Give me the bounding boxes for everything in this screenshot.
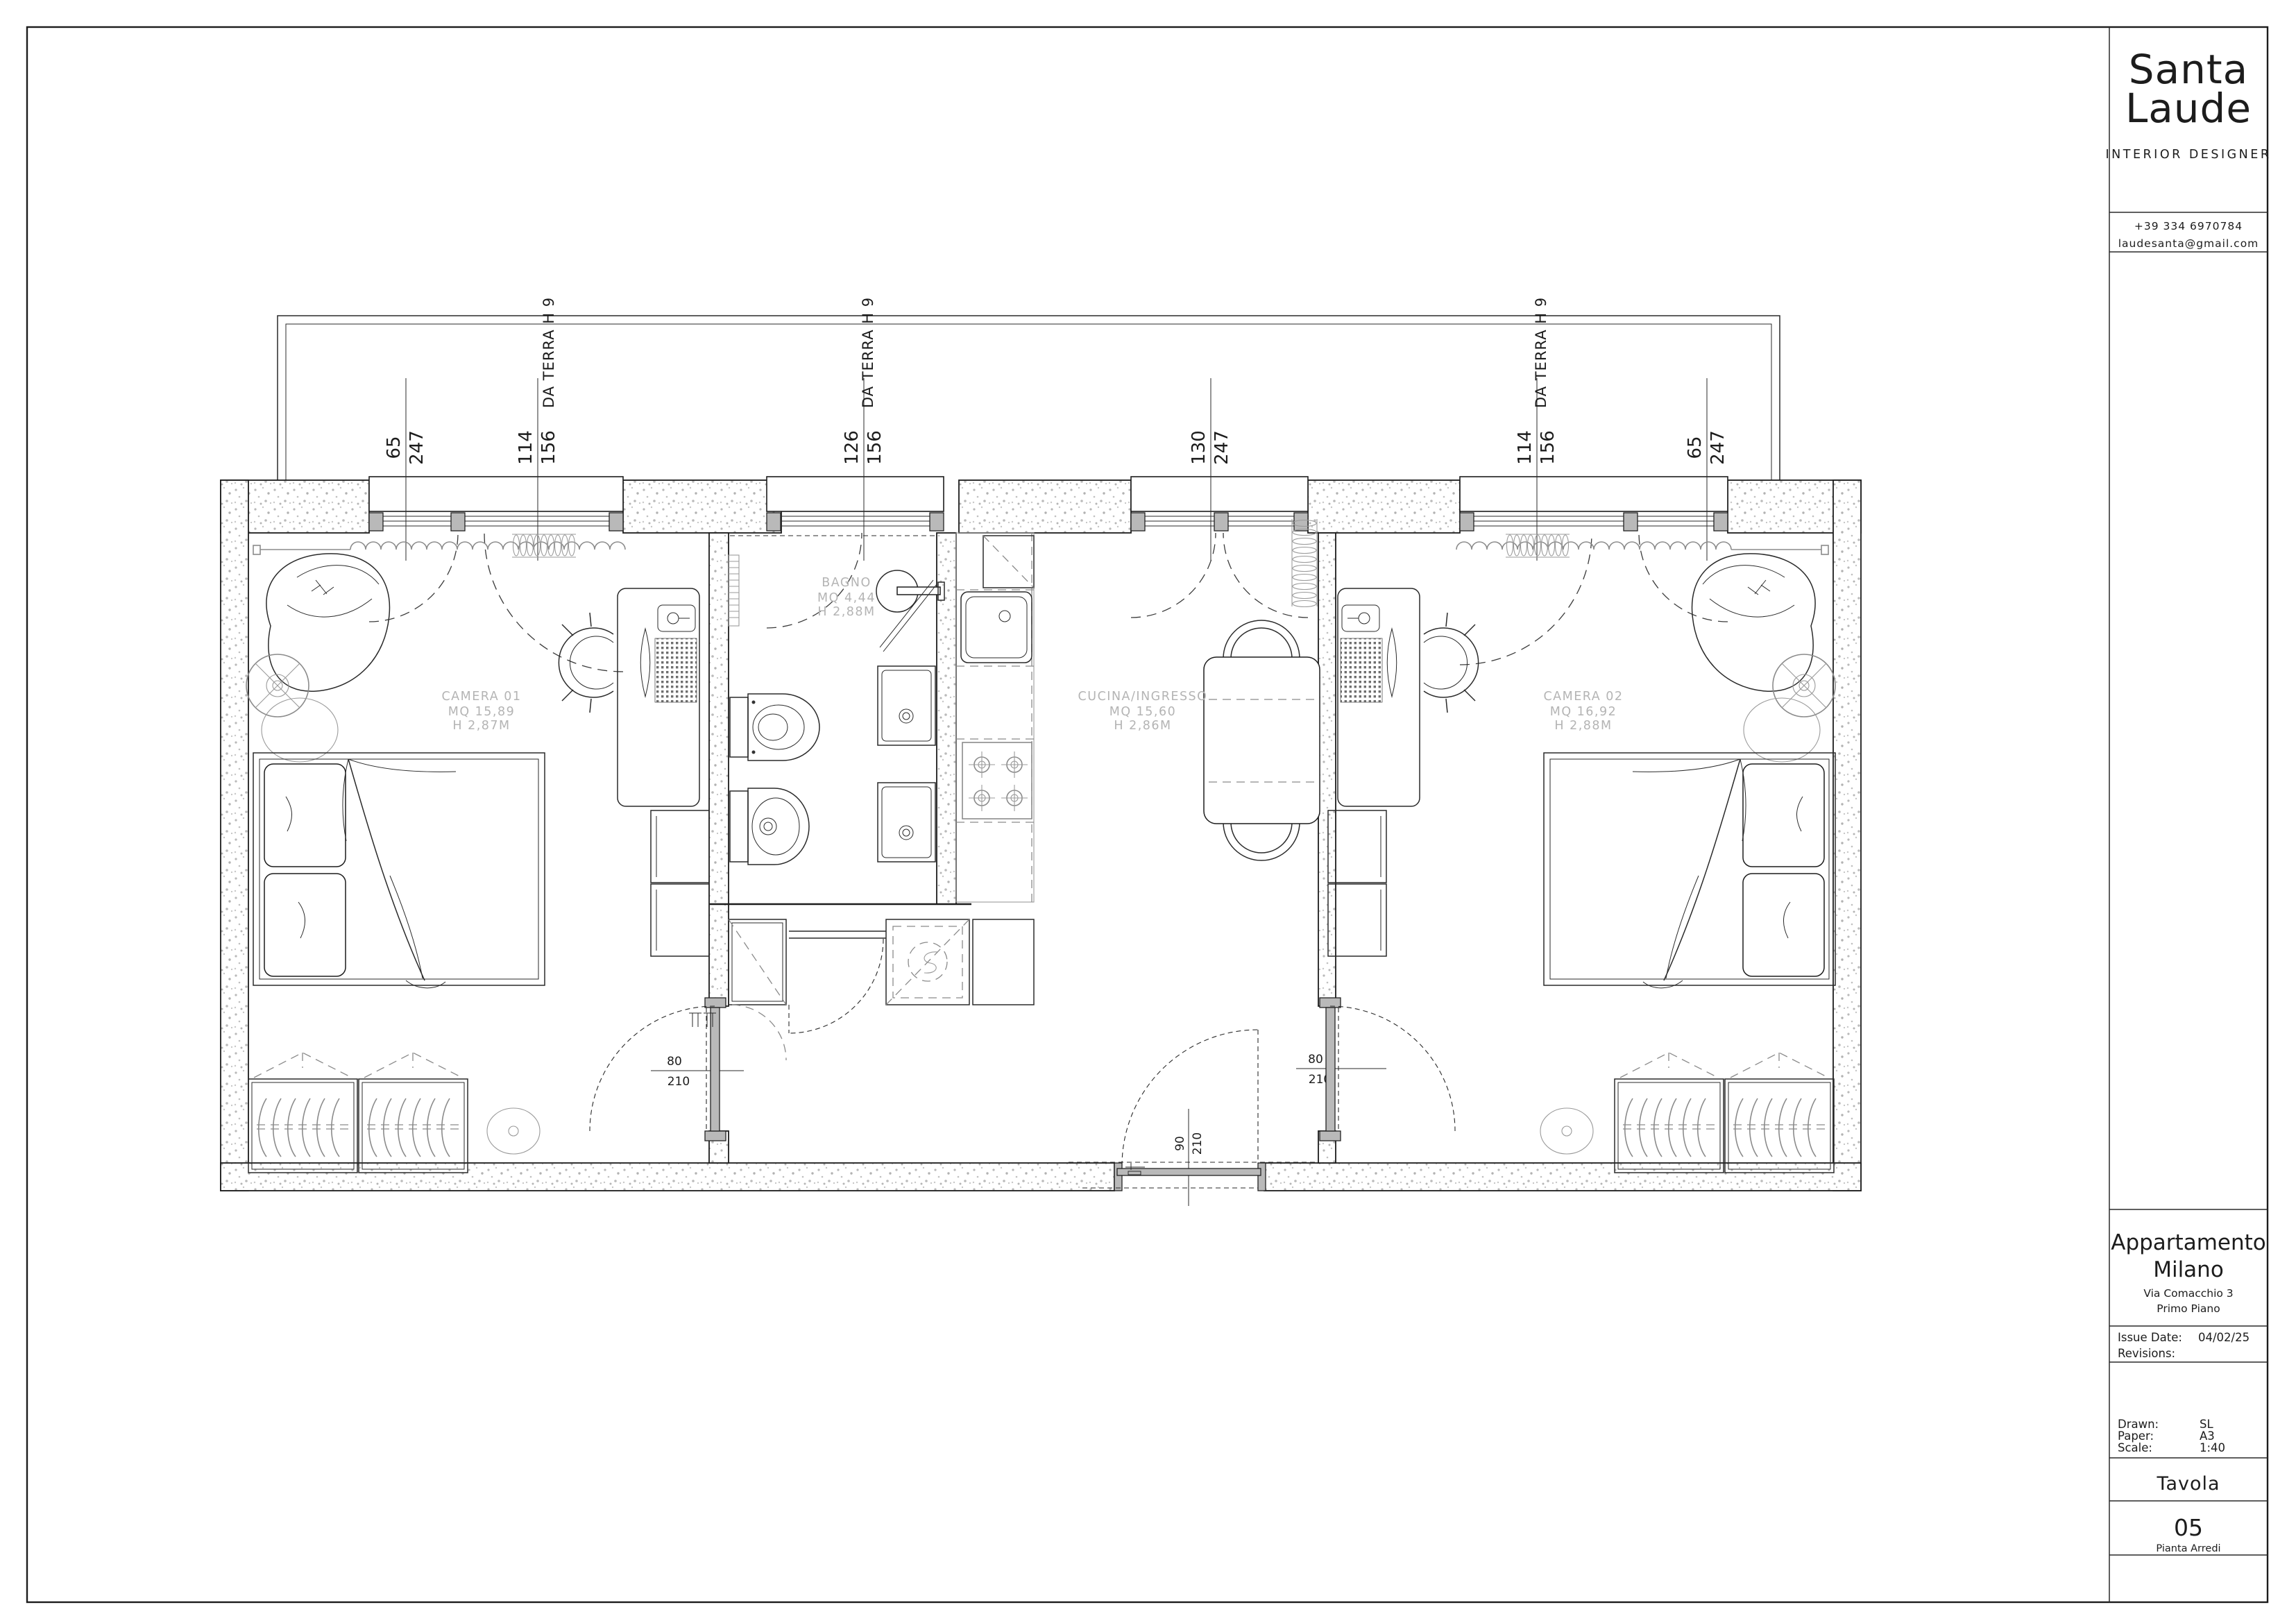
floor-lamp <box>487 1108 540 1154</box>
desk-with-chair <box>559 588 709 956</box>
room-cucina-ingresso: CUCINA/INGRESSO MQ 15,60 H 2,86M <box>956 519 1320 902</box>
sheet-name: Pianta Arredi <box>2156 1543 2220 1554</box>
window-floor-note: DA TERRA H 9 <box>860 297 876 408</box>
sheet-label: Tavola <box>2156 1473 2220 1495</box>
room-label-height: H 2,86M <box>1114 719 1171 733</box>
dim-width: 126 <box>842 430 862 465</box>
fridge <box>983 536 1034 588</box>
door-dim-height: 210 <box>1191 1132 1205 1155</box>
room-label-area: MQ 15,89 <box>448 705 516 719</box>
brand-name-line2: Laude <box>2125 85 2252 132</box>
radiator <box>729 555 739 626</box>
room-label-name: BAGNO <box>822 576 871 590</box>
window-cucina <box>1131 477 1308 531</box>
room-camera-02: CAMERA 02 MQ 16,92 H 2,88M <box>1328 534 1835 1173</box>
project-title-line1: Appartamento <box>2111 1230 2266 1255</box>
door-dim-height: 210 <box>667 1075 690 1089</box>
beanbag-armchair <box>246 554 389 762</box>
dining-chair <box>1223 822 1300 860</box>
beanbag-armchair <box>1692 554 1835 762</box>
project-floor: Primo Piano <box>2157 1302 2220 1315</box>
door-camera02 <box>1320 998 1455 1141</box>
wardrobe <box>1615 1053 1724 1173</box>
brand-phone: +39 334 6970784 <box>2134 220 2243 232</box>
washing-machine <box>886 919 969 1005</box>
window-camera02 <box>1460 477 1728 531</box>
window-bagno <box>767 477 944 531</box>
dim-height: 156 <box>1538 430 1558 465</box>
window-floor-note: DA TERRA H 9 <box>1533 297 1549 408</box>
double-bed <box>1544 753 1835 988</box>
wardrobe <box>1725 1053 1834 1173</box>
dining-table <box>1204 620 1320 860</box>
dim-width: 114 <box>516 430 536 465</box>
brand-tagline: INTERIOR DESIGNER <box>2106 148 2272 162</box>
dim-width: 114 <box>1515 430 1536 465</box>
floor-plan-sheet: Santa Laude INTERIOR DESIGNER +39 334 69… <box>0 0 2296 1623</box>
dim-width: 65 <box>1685 436 1706 459</box>
washbasin <box>878 783 935 862</box>
project-address: Via Comacchio 3 <box>2143 1287 2233 1300</box>
page-frame <box>27 27 2268 1602</box>
revisions-label: Revisions: <box>2118 1347 2175 1360</box>
wardrobe <box>248 1053 357 1173</box>
room-label-name: CUCINA/INGRESSO <box>1078 690 1208 704</box>
dim-height: 156 <box>865 430 885 465</box>
room-camera-01: CAMERA 01 MQ 15,89 H 2,87M <box>246 534 709 1173</box>
brand-email: laudesanta@gmail.com <box>2118 237 2259 250</box>
room-label-area: MQ 16,92 <box>1550 705 1617 719</box>
radiator <box>1506 534 1570 557</box>
sheet-number: 05 <box>2174 1514 2203 1541</box>
door-camera01 <box>590 998 726 1141</box>
floor-lamp <box>1540 1108 1593 1154</box>
wardrobe <box>359 1053 468 1173</box>
dim-width: 130 <box>1189 430 1209 465</box>
washbasin <box>878 666 935 745</box>
closet <box>729 919 786 1060</box>
room-label-area: MQ 4,44 <box>817 591 876 605</box>
hob <box>962 742 1032 819</box>
kitchen-sink <box>961 592 1032 663</box>
window-camera01 <box>369 477 623 531</box>
room-label-name: CAMERA 02 <box>1543 690 1623 704</box>
issue-date-value: 04/02/25 <box>2198 1331 2250 1344</box>
title-panel: Santa Laude INTERIOR DESIGNER +39 334 69… <box>2106 27 2272 1602</box>
room-label-height: H 2,87M <box>452 719 510 733</box>
bidet <box>730 788 809 865</box>
room-label-area: MQ 15,60 <box>1109 705 1177 719</box>
cabinet <box>973 919 1034 1005</box>
dim-width: 65 <box>384 436 405 459</box>
door-dim-width: 80 <box>667 1055 682 1069</box>
dining-chair <box>1223 620 1300 658</box>
project-title-line2: Milano <box>2153 1257 2224 1282</box>
door-dim-width: 90 <box>1173 1136 1187 1151</box>
room-label-name: CAMERA 01 <box>441 690 521 704</box>
scale-value: 1:40 <box>2200 1441 2225 1454</box>
window-floor-note: DA TERRA H 9 <box>541 297 557 408</box>
scale-label: Scale: <box>2118 1441 2152 1454</box>
double-bed <box>253 753 545 988</box>
kitchen-counter <box>956 533 1034 902</box>
desk-with-chair <box>1328 588 1479 956</box>
room-label-height: H 2,88M <box>817 605 875 619</box>
door-bagno <box>789 931 886 1033</box>
toilet <box>730 694 819 760</box>
radiator <box>512 534 576 557</box>
dim-height: 247 <box>1211 430 1232 465</box>
shower-fitting <box>876 570 944 652</box>
door-dim-width: 80 <box>1308 1053 1323 1067</box>
issue-date-label: Issue Date: <box>2118 1331 2182 1344</box>
dim-height: 156 <box>538 430 559 465</box>
dim-height: 247 <box>407 430 427 465</box>
room-label-height: H 2,88M <box>1554 719 1612 733</box>
dim-height: 247 <box>1708 430 1728 465</box>
